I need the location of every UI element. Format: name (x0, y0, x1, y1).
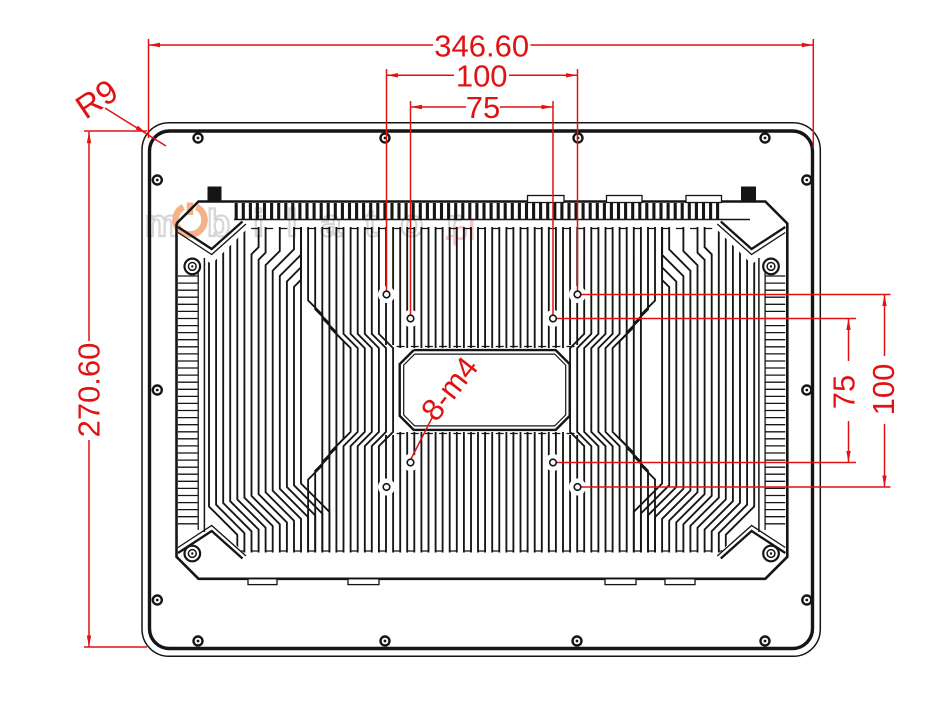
svg-text:270.60: 270.60 (72, 343, 107, 438)
svg-text:75: 75 (827, 375, 862, 409)
svg-text:100: 100 (456, 58, 508, 93)
svg-text:75: 75 (466, 90, 500, 125)
svg-text:100: 100 (866, 364, 901, 416)
svg-text:R9: R9 (69, 72, 125, 126)
